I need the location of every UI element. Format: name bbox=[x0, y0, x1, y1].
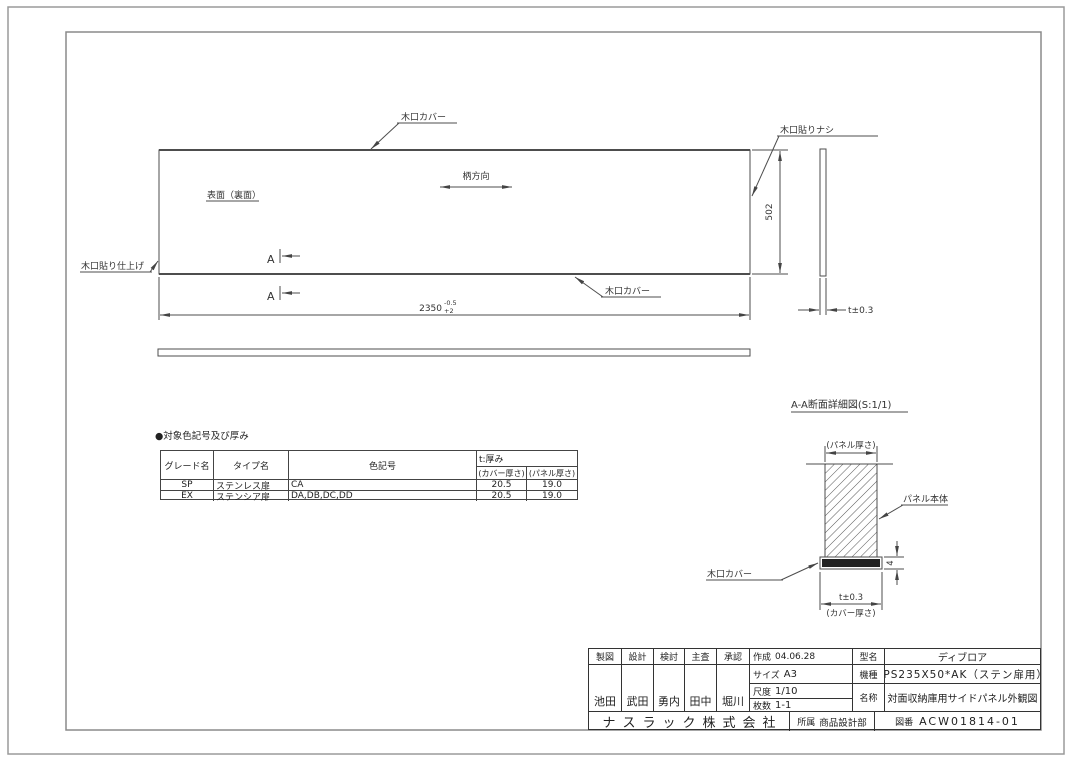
role-drafted: 製図 bbox=[589, 649, 621, 664]
size-value: A3 bbox=[784, 669, 797, 680]
table-cell-panel: 19.0 bbox=[526, 490, 577, 501]
panel-side-view bbox=[820, 149, 826, 276]
inner-border bbox=[66, 32, 1041, 730]
table-cell-type: ステンシア扉 bbox=[213, 490, 288, 501]
dim-cover-height: 4 bbox=[884, 541, 904, 585]
signer-stamp: 池田 bbox=[589, 664, 621, 711]
edge-cover-top-label: 木口カバー bbox=[401, 111, 446, 123]
dim-height-value: 502 bbox=[765, 203, 775, 220]
col-header-cover-thickness: (カバー厚さ) bbox=[476, 466, 526, 479]
color-table-title: ●対象色記号及び厚み bbox=[155, 428, 249, 442]
panel-thickness-label: (パネル厚さ) bbox=[826, 441, 875, 451]
section-cut-marker-2: A bbox=[267, 286, 300, 303]
cover-thickness-dim-value: t±0.3 bbox=[839, 593, 863, 603]
dim-side-thickness: t±0.3 bbox=[798, 278, 873, 316]
table-cell-cover: 20.5 bbox=[476, 490, 526, 501]
edge-cover-bottom-label: 木口カバー bbox=[605, 285, 650, 297]
dwg-no-label: 図番 bbox=[895, 715, 913, 728]
col-header-type: タイプ名 bbox=[213, 451, 288, 479]
table-cell-panel: 19.0 bbox=[526, 479, 577, 490]
sheets-cell: 枚数 1-1 bbox=[749, 698, 852, 711]
table-cell-color-code: DA,DB,DC,DD bbox=[288, 490, 476, 501]
section-detail: A-A断面詳細図(S:1/1) (パネル厚さ) パネル本体 bbox=[706, 398, 948, 619]
table-cell-grade: SP bbox=[161, 479, 213, 490]
dim-side-thickness-value: t±0.3 bbox=[848, 306, 873, 316]
label-edge-cover-bottom: 木口カバー bbox=[575, 277, 661, 297]
dim-cover-thickness: t±0.3 (カバー厚さ) bbox=[820, 572, 882, 619]
title-block: 製図 設計 検討 主査 承認 池田 武田 勇内 田中 堀川 作成 04.06.2… bbox=[588, 648, 1041, 730]
created-cell: 作成 04.06.28 bbox=[749, 649, 852, 664]
surface-label: 表面（裏面） bbox=[207, 189, 261, 201]
scale-value: 1/10 bbox=[775, 686, 797, 697]
created-label: 作成 bbox=[753, 650, 771, 663]
dim-width-tol-top: -0.5 bbox=[444, 299, 457, 307]
label-edge-finish: 木口貼り仕上げ bbox=[80, 260, 158, 272]
panel-bottom-edge-view bbox=[158, 349, 750, 356]
dim-width-value: 2350 bbox=[419, 304, 442, 314]
col-header-grade: グレード名 bbox=[161, 451, 213, 479]
edge-finish-label: 木口貼り仕上げ bbox=[81, 260, 144, 272]
dim-width-tol-bottom: +2 bbox=[444, 307, 454, 315]
cover-thickness-label: (カバー厚さ) bbox=[826, 609, 875, 619]
panel-body-label: パネル本体 bbox=[903, 493, 948, 505]
label-surface: 表面（裏面） bbox=[206, 189, 261, 201]
size-cell: サイズ A3 bbox=[749, 664, 852, 683]
model-value: ディブロア bbox=[884, 649, 1040, 664]
company-name: ナスラック株式会社 bbox=[589, 712, 789, 731]
signer-stamp: 田中 bbox=[684, 664, 716, 711]
table-cell-color-code: CA bbox=[288, 479, 476, 490]
cover-height-value: 4 bbox=[886, 560, 896, 565]
label-edge-no-tape: 木口貼りナシ bbox=[752, 124, 878, 196]
drawing-sheet: 木口カバー 木口貼りナシ 表面（裏面） 柄方向 木口貼り仕上げ bbox=[0, 0, 1080, 764]
scale-cell: 尺度 1/10 bbox=[749, 683, 852, 698]
name-value: 対面収納庫用サイドパネル外観図 bbox=[884, 683, 1040, 711]
section-title: A-A断面詳細図(S:1/1) bbox=[791, 398, 892, 411]
signer-stamp: 堀川 bbox=[716, 664, 749, 711]
label-panel-body: パネル本体 bbox=[879, 493, 948, 519]
dim-panel-thickness: (パネル厚さ) bbox=[825, 441, 877, 462]
table-cell-type: ステンレス扉 bbox=[213, 479, 288, 490]
label-section-edge-cover: 木口カバー bbox=[706, 563, 818, 580]
role-reviewed: 検討 bbox=[653, 649, 684, 664]
machine-label: 機種 bbox=[852, 664, 884, 683]
dwg-no-value: ACW01814-01 bbox=[919, 715, 1020, 728]
table-cell-cover: 20.5 bbox=[476, 479, 526, 490]
grain-direction-label: 柄方向 bbox=[462, 170, 489, 182]
role-chief: 主査 bbox=[684, 649, 716, 664]
section-edge-cover-label: 木口カバー bbox=[707, 568, 752, 580]
signer-stamp: 武田 bbox=[621, 664, 653, 711]
scale-label: 尺度 bbox=[753, 685, 771, 698]
model-label: 型名 bbox=[852, 649, 884, 664]
signer-stamp: 勇内 bbox=[653, 664, 684, 711]
machine-value: *PS235X50*AK（ステン扉用） bbox=[884, 664, 1040, 683]
department-cell: 所属 商品設計部 bbox=[789, 712, 874, 731]
role-approved: 承認 bbox=[716, 649, 749, 664]
col-header-color-code: 色記号 bbox=[288, 451, 476, 479]
dept-value: 商品設計部 bbox=[819, 715, 867, 729]
table-cell-grade: EX bbox=[161, 490, 213, 501]
dept-label: 所属 bbox=[797, 715, 815, 728]
edge-no-tape-label: 木口貼りナシ bbox=[780, 124, 834, 136]
outer-border bbox=[8, 7, 1064, 754]
section-marker-letter: A bbox=[267, 253, 275, 266]
created-date: 04.06.28 bbox=[775, 652, 815, 662]
color-code-table: グレード名 タイプ名 色記号 t:厚み (カバー厚さ) (パネル厚さ) SP ス… bbox=[160, 450, 578, 500]
dim-height-502: 502 bbox=[752, 150, 788, 274]
panel-front-view bbox=[159, 150, 750, 274]
size-label: サイズ bbox=[753, 668, 780, 681]
sheets-value: 1-1 bbox=[775, 700, 791, 711]
drawing-number-cell: 図番 ACW01814-01 bbox=[874, 712, 1040, 731]
section-marker-letter: A bbox=[267, 290, 275, 303]
label-edge-cover-top: 木口カバー bbox=[371, 111, 457, 149]
role-designed: 設計 bbox=[621, 649, 653, 664]
name-label: 名称 bbox=[852, 683, 884, 711]
col-header-panel-thickness: (パネル厚さ) bbox=[526, 466, 577, 479]
title-block-bottom-row: ナスラック株式会社 所属 商品設計部 図番 ACW01814-01 bbox=[589, 711, 1040, 731]
dim-width-2350: 2350 -0.5 +2 bbox=[159, 277, 750, 320]
sheets-label: 枚数 bbox=[753, 699, 771, 712]
col-header-thickness: t:厚み bbox=[476, 451, 577, 466]
